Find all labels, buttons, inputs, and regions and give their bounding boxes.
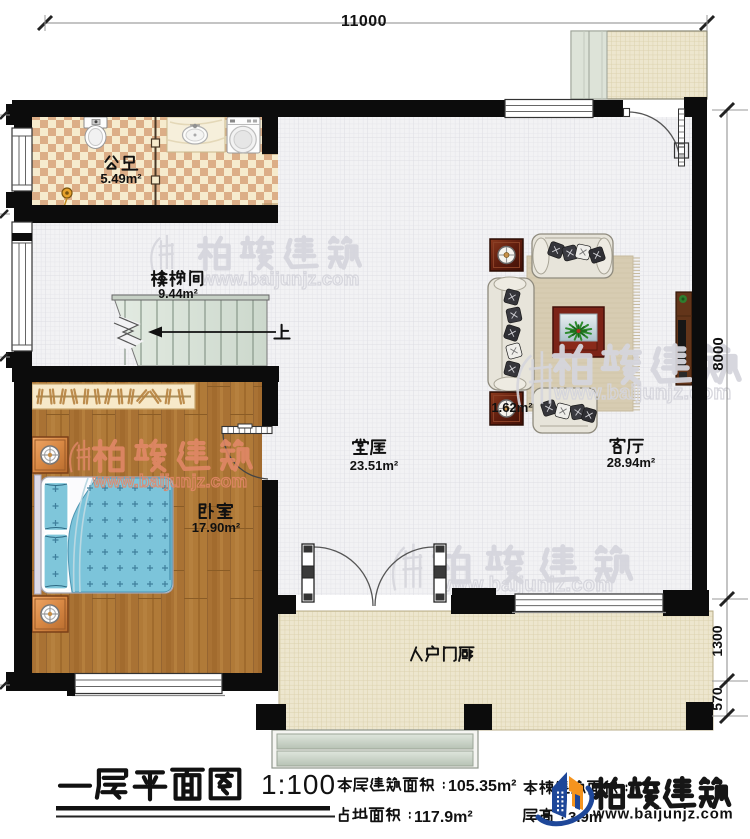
svg-text:1300: 1300 <box>709 625 725 656</box>
svg-text:9.44m²: 9.44m² <box>158 287 198 301</box>
svg-text:117.9m²: 117.9m² <box>414 809 473 826</box>
svg-text:1:100: 1:100 <box>261 769 336 800</box>
svg-text:28.94m²: 28.94m² <box>607 455 656 470</box>
svg-text:23.51m²: 23.51m² <box>350 458 399 473</box>
svg-text:11000: 11000 <box>341 13 387 30</box>
svg-text:570: 570 <box>709 687 725 711</box>
svg-text:8000: 8000 <box>710 337 727 370</box>
svg-text:17.90m²: 17.90m² <box>192 520 241 535</box>
svg-text:www.baijunjz.com: www.baijunjz.com <box>592 807 734 823</box>
svg-text:1.62m²: 1.62m² <box>491 400 533 415</box>
svg-text:5.49m²: 5.49m² <box>100 171 142 186</box>
svg-text:www.baijunjz.com: www.baijunjz.com <box>92 471 247 491</box>
svg-text:105.35m²: 105.35m² <box>448 778 517 795</box>
svg-text:www.baijunjz.com: www.baijunjz.com <box>200 269 360 289</box>
